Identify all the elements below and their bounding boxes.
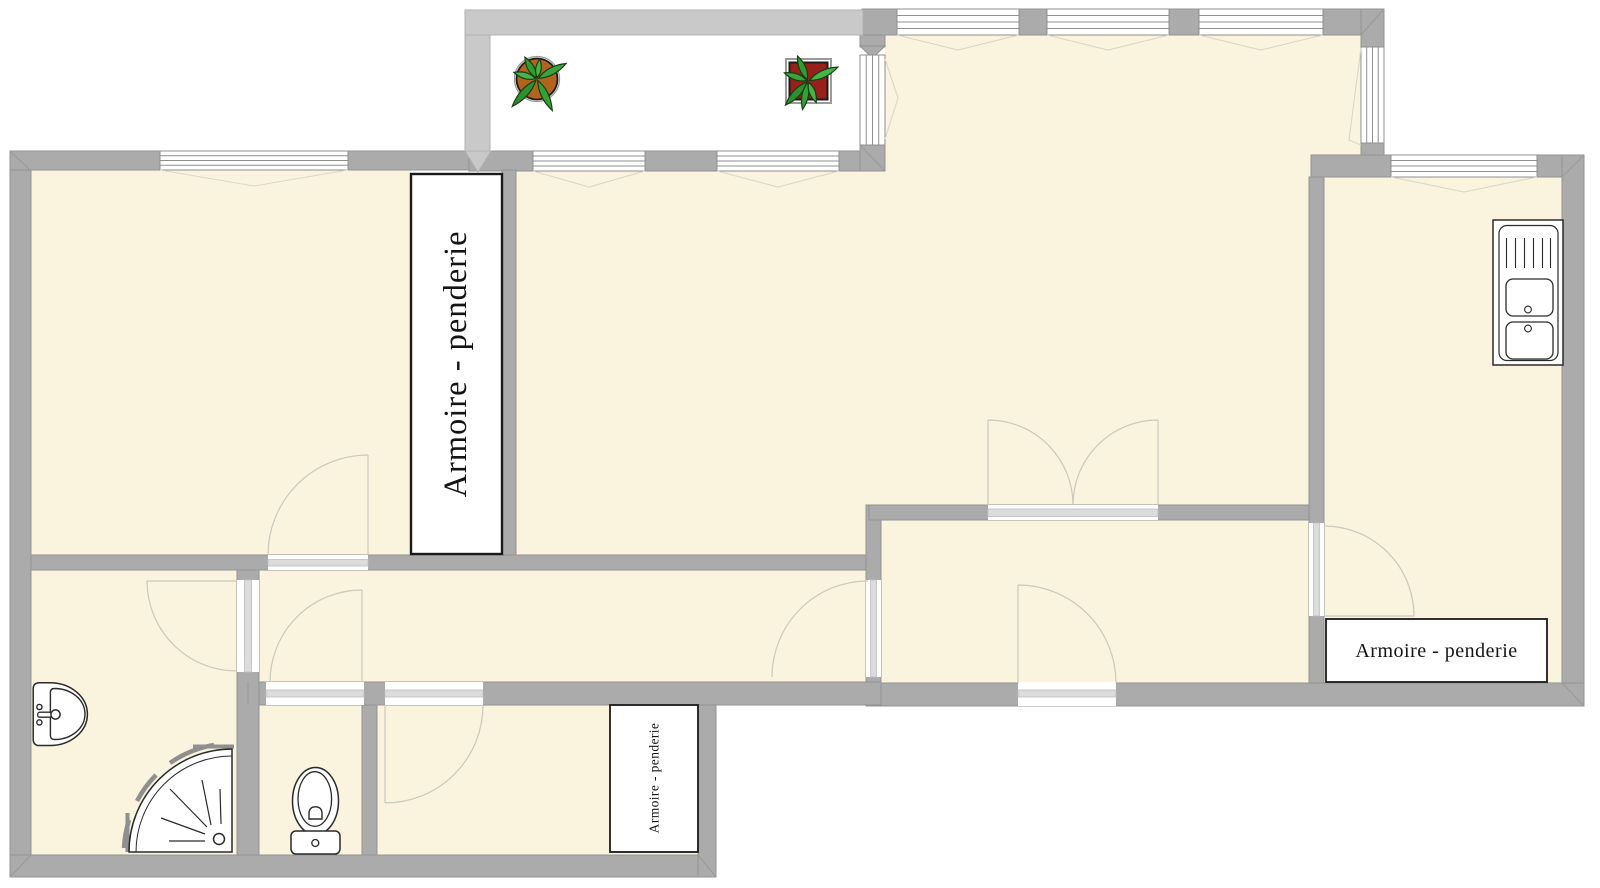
svg-text:Armoire - penderie: Armoire - penderie <box>1355 640 1517 662</box>
svg-text:Armoire - penderie: Armoire - penderie <box>647 723 662 834</box>
svg-text:Armoire - penderie: Armoire - penderie <box>438 230 474 497</box>
